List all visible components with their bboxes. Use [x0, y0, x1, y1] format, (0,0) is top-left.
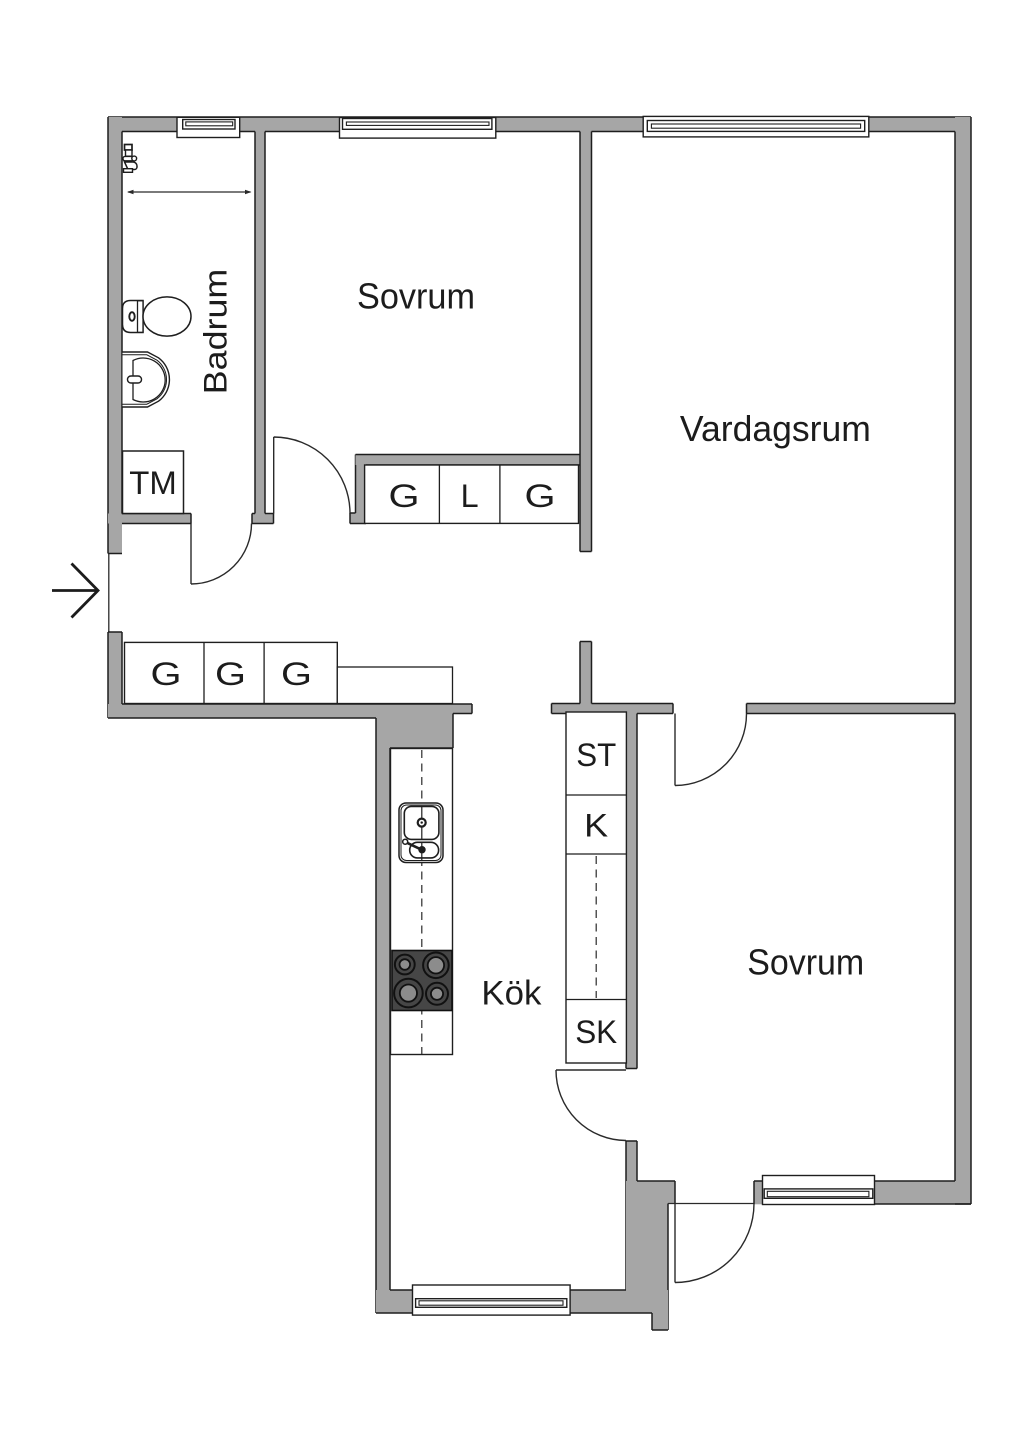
svg-text:Vardagsrum: Vardagsrum — [680, 408, 871, 449]
svg-text:SK: SK — [575, 1014, 617, 1050]
svg-text:G: G — [525, 478, 556, 514]
svg-text:G: G — [151, 656, 182, 692]
svg-text:Sovrum: Sovrum — [357, 275, 475, 316]
svg-text:L: L — [461, 478, 479, 514]
svg-text:Badrum: Badrum — [198, 269, 234, 395]
svg-text:ST: ST — [576, 737, 616, 773]
svg-text:K: K — [584, 807, 608, 843]
svg-text:G: G — [389, 478, 420, 514]
svg-text:G: G — [215, 656, 246, 692]
svg-text:G: G — [281, 656, 312, 692]
svg-text:Sovrum: Sovrum — [747, 942, 864, 983]
svg-text:TM: TM — [129, 465, 177, 501]
svg-text:Kök: Kök — [481, 975, 542, 1013]
